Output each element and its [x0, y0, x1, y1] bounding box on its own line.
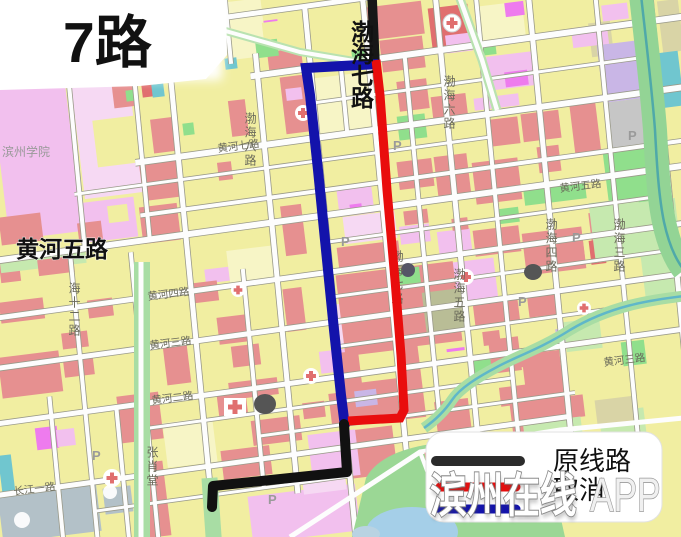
svg-text:APP: APP	[590, 468, 661, 521]
svg-text:黄河五路: 黄河五路	[16, 236, 109, 262]
svg-text:P: P	[341, 234, 350, 249]
svg-text:张肖堂: 张肖堂	[145, 446, 159, 488]
svg-text:渤海八路: 渤海八路	[243, 112, 257, 168]
svg-text:P: P	[518, 294, 527, 309]
svg-text:渤海四路: 渤海四路	[544, 218, 558, 274]
svg-text:P: P	[572, 230, 581, 245]
svg-text:P: P	[92, 448, 101, 463]
svg-text:滨州在线: 滨州在线	[430, 470, 577, 522]
svg-text:渤海六路: 渤海六路	[442, 75, 456, 131]
svg-text:P: P	[393, 138, 402, 153]
svg-text:P: P	[628, 128, 637, 143]
svg-text:P: P	[268, 492, 277, 507]
svg-text:海十二路: 海十二路	[67, 281, 81, 338]
svg-text:渤海五路: 渤海五路	[452, 268, 466, 324]
svg-text:路: 路	[351, 85, 375, 111]
svg-text:7路: 7路	[63, 11, 153, 75]
svg-text:渤海三路: 渤海三路	[612, 218, 626, 274]
svg-text:滨州学院: 滨州学院	[2, 144, 50, 159]
